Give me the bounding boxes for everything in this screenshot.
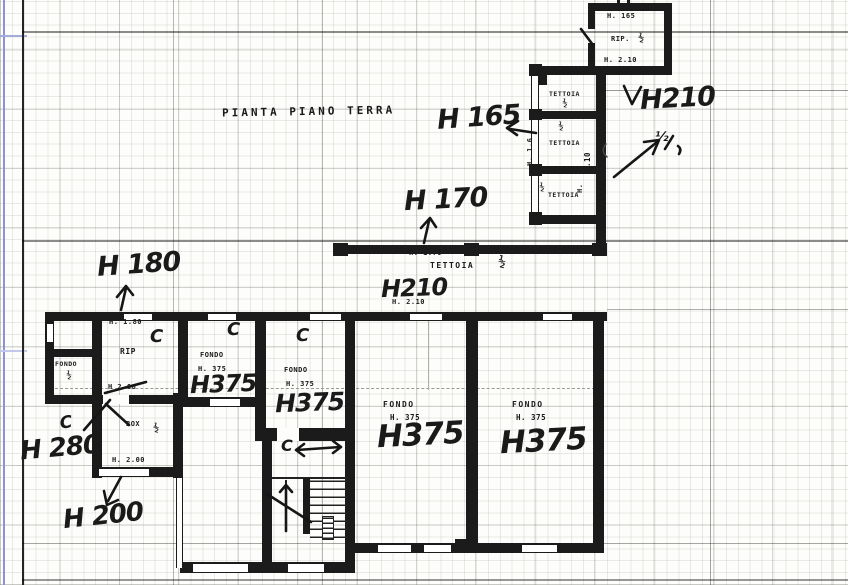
- wall: [178, 312, 188, 404]
- tettoia2-fraction: ½: [557, 122, 565, 132]
- wall: [593, 312, 604, 553]
- annotation-c-h280: C: [59, 414, 73, 432]
- annotation-h210-band: H210: [381, 275, 448, 301]
- wall: [588, 3, 672, 11]
- wall: [540, 66, 672, 75]
- post: [592, 243, 607, 256]
- window: [410, 313, 442, 321]
- post: [529, 212, 542, 225]
- annotation-h280: H 280: [19, 432, 101, 465]
- annotation-h180: H 180: [96, 248, 181, 281]
- grid-line: [607, 309, 848, 310]
- annotation-c-stairs: C: [281, 438, 292, 454]
- post: [529, 109, 542, 120]
- annotation-h375-2: H375: [275, 389, 345, 416]
- wall: [466, 312, 478, 553]
- annotation-h200: H 200: [62, 499, 144, 533]
- post: [333, 243, 348, 256]
- shed-label: RIP.: [611, 36, 630, 43]
- band-label: TETTOIA: [430, 262, 474, 270]
- grid-line: [22, 240, 848, 242]
- window: [288, 563, 324, 573]
- margin-line-blue: [3, 0, 5, 585]
- tettoia1-label: TETTOIA: [549, 91, 580, 98]
- fondo2-height: H. 375: [286, 381, 314, 388]
- wall: [45, 349, 100, 357]
- wall: [596, 75, 606, 254]
- pencil-line: [428, 318, 429, 390]
- fondo-small-label: FONDO: [55, 361, 77, 368]
- stair-newel: [322, 516, 334, 540]
- window: [424, 544, 451, 553]
- annotation-c-fondo2: C: [296, 327, 308, 345]
- fondo1-label: FONDO: [200, 352, 224, 359]
- wall: [262, 441, 272, 573]
- tettoia3-label: TETTOIA: [548, 192, 579, 199]
- window: [193, 563, 248, 573]
- post: [464, 243, 479, 256]
- fondo3-label: FONDO: [383, 401, 415, 409]
- fondo4-height: H. 375: [516, 414, 546, 422]
- annotation-c-rip: C: [150, 328, 162, 346]
- window: [378, 544, 411, 553]
- box-height: H. 2.00: [112, 457, 145, 464]
- wall: [255, 312, 266, 441]
- band-fraction: ½: [497, 255, 508, 270]
- rip-height-top: H. 1.80: [109, 319, 142, 326]
- tettoia2-label: TETTOIA: [549, 140, 580, 147]
- tettoia-dim-right: 2.10: [584, 152, 592, 172]
- chimney-stub: [617, 0, 620, 6]
- wall: [588, 3, 595, 29]
- post: [455, 539, 478, 553]
- plan-title: PIANTA PIANO TERRA: [222, 104, 395, 118]
- door-opening: [103, 395, 129, 404]
- wall: [664, 3, 672, 75]
- tettoia3-fraction: ½: [538, 183, 546, 193]
- window: [46, 324, 54, 342]
- fondo2-label: FONDO: [284, 367, 308, 374]
- grid-line: [22, 579, 848, 581]
- shed-height-top: H. 165: [607, 13, 635, 20]
- wall: [173, 393, 183, 478]
- post: [529, 64, 542, 76]
- annotation-h375-3: H375: [376, 418, 464, 453]
- window: [310, 313, 341, 321]
- annotation-h210-ne: H210: [639, 83, 715, 114]
- wall: [534, 215, 596, 224]
- annotation-h165: H 165: [436, 101, 521, 134]
- fondo-small-fraction: ½: [65, 371, 73, 381]
- rip-label: RIP: [120, 348, 136, 356]
- box-label: BOX: [126, 421, 140, 428]
- annotation-h375-4: H375: [499, 424, 587, 459]
- tettoia-height-left: H. 1.6: [527, 138, 534, 166]
- rip-door-height: H 2.00: [108, 384, 136, 391]
- window: [543, 313, 572, 321]
- shed-fraction: ½: [637, 33, 645, 44]
- stair-rail: [285, 480, 287, 530]
- fondo4-label: FONDO: [512, 401, 544, 409]
- chimney-stub: [627, 0, 630, 6]
- wall: [588, 43, 595, 73]
- grid-line: [22, 31, 848, 33]
- wall: [534, 111, 596, 119]
- stair-wall: [303, 478, 310, 534]
- grid-line: [173, 0, 174, 585]
- wall: [255, 428, 355, 441]
- sheet-border-line: [22, 0, 24, 585]
- band-height: H. 1.70: [409, 250, 442, 257]
- window: [99, 468, 149, 477]
- tettoia1-fraction: ½: [561, 99, 569, 109]
- box-fraction: ½: [152, 423, 160, 434]
- window: [522, 544, 557, 553]
- shed-height-bottom: H. 2.10: [604, 57, 637, 64]
- annotation-h375-1: H375: [190, 371, 257, 397]
- tettoia-h-mark: H.: [577, 184, 584, 193]
- annotation-h170: H 170: [403, 184, 488, 215]
- floor-plan-sheet: PIANTA PIANO TERRA H. 165 RIP. ½ H. 2.10…: [0, 0, 848, 585]
- window: [210, 398, 240, 407]
- yard-fence-line: [176, 478, 183, 568]
- grid-line: [600, 90, 848, 91]
- annotation-half-ne: ½: [655, 131, 667, 144]
- annotation-c-fondo1: C: [227, 321, 239, 339]
